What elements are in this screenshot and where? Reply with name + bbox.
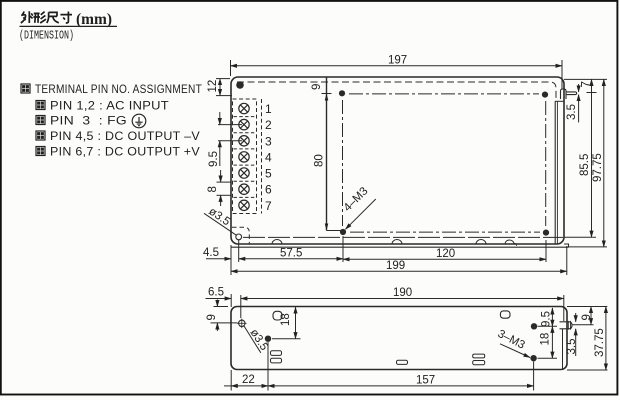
svg-text:9.5: 9.5 bbox=[208, 151, 220, 167]
svg-text:PIN 1,2 : AC INPUT: PIN 1,2 : AC INPUT bbox=[50, 99, 169, 113]
svg-text:197: 197 bbox=[388, 55, 407, 67]
svg-text:9: 9 bbox=[311, 84, 323, 90]
svg-text:7: 7 bbox=[581, 81, 593, 87]
svg-text:12: 12 bbox=[207, 80, 219, 93]
svg-text:6: 6 bbox=[265, 183, 272, 197]
svg-text:18: 18 bbox=[280, 313, 292, 326]
svg-text:PIN 6,7 : DC OUTPUT +V: PIN 6,7 : DC OUTPUT +V bbox=[50, 145, 200, 159]
svg-text:9.5: 9.5 bbox=[541, 311, 553, 327]
svg-text:37.75: 37.75 bbox=[594, 328, 606, 357]
svg-text:PIN 4,5 : DC OUTPUT –V: PIN 4,5 : DC OUTPUT –V bbox=[50, 129, 200, 143]
svg-text:80: 80 bbox=[314, 154, 326, 167]
svg-text:3.5: 3.5 bbox=[566, 339, 578, 355]
svg-text:22: 22 bbox=[242, 374, 255, 386]
svg-text:157: 157 bbox=[416, 374, 435, 386]
svg-text:85.5: 85.5 bbox=[579, 154, 591, 176]
svg-text:97.75: 97.75 bbox=[592, 153, 604, 182]
svg-text:3.5: 3.5 bbox=[566, 104, 578, 120]
svg-text:4: 4 bbox=[265, 150, 272, 164]
svg-text:TERMINAL PIN NO. ASSIGNMENT: TERMINAL PIN NO. ASSIGNMENT bbox=[35, 82, 202, 96]
svg-text:120: 120 bbox=[436, 248, 455, 260]
svg-text:199: 199 bbox=[386, 260, 405, 272]
svg-text:9: 9 bbox=[581, 314, 593, 320]
svg-text:57.5: 57.5 bbox=[280, 247, 302, 259]
svg-text:PIN 3 : FG: PIN 3 : FG bbox=[50, 114, 127, 128]
svg-text:(DIMENSION): (DIMENSION) bbox=[19, 29, 74, 43]
svg-text:190: 190 bbox=[393, 287, 412, 299]
svg-text:ø3.5: ø3.5 bbox=[206, 206, 232, 229]
svg-text:6.5: 6.5 bbox=[208, 287, 224, 299]
svg-text:18: 18 bbox=[540, 333, 552, 346]
svg-text:ø3.5: ø3.5 bbox=[247, 327, 270, 353]
svg-text:1: 1 bbox=[265, 102, 272, 116]
svg-text:5: 5 bbox=[265, 167, 272, 181]
svg-text:3–M3: 3–M3 bbox=[496, 328, 527, 352]
svg-text:3: 3 bbox=[265, 134, 272, 148]
svg-text:2: 2 bbox=[265, 118, 272, 132]
svg-text:4.5: 4.5 bbox=[203, 247, 219, 259]
svg-text:8: 8 bbox=[207, 186, 219, 192]
svg-text:9: 9 bbox=[206, 314, 218, 320]
svg-text:4–M3: 4–M3 bbox=[342, 185, 371, 214]
svg-text:(mm): (mm) bbox=[76, 11, 112, 28]
svg-text:7: 7 bbox=[265, 199, 272, 213]
